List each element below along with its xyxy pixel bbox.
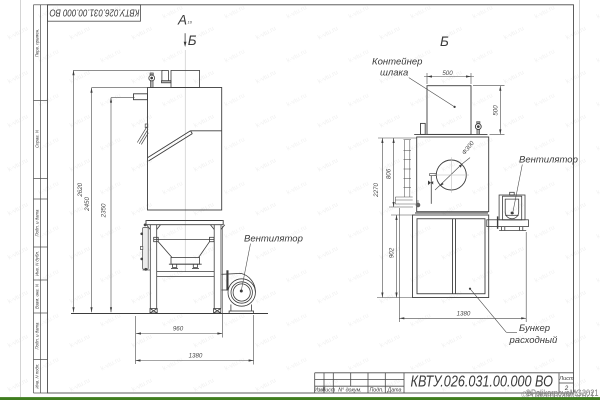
- svg-text:Бункер: Бункер: [519, 323, 550, 334]
- svg-text:Перв. примен.: Перв. примен.: [35, 29, 40, 58]
- svg-text:10: 10: [188, 20, 193, 25]
- svg-text:А: А: [177, 13, 187, 28]
- svg-text:960: 960: [173, 326, 184, 333]
- svg-text:шлака: шлака: [380, 68, 408, 79]
- svg-text:1380: 1380: [457, 310, 471, 317]
- svg-text:Лист: Лист: [558, 376, 574, 382]
- svg-text:2620: 2620: [77, 182, 84, 197]
- svg-text:806: 806: [385, 168, 392, 179]
- svg-text:Взам. инв. N: Взам. инв. N: [35, 283, 40, 309]
- svg-text:Лист: Лист: [321, 387, 336, 393]
- svg-text:Подп. и дата: Подп. и дата: [35, 209, 40, 237]
- svg-text:500: 500: [493, 105, 500, 116]
- svg-text:Инв. N подл.: Инв. N подл.: [35, 363, 40, 388]
- svg-text:Контейнер: Контейнер: [372, 57, 422, 68]
- svg-text:Дата: Дата: [387, 387, 402, 393]
- svg-text:Вентилятор: Вентилятор: [519, 155, 578, 166]
- svg-text:Подп. и дата: Подп. и дата: [35, 322, 40, 350]
- svg-text:2270: 2270: [373, 183, 380, 198]
- svg-text:2450: 2450: [84, 197, 91, 212]
- svg-text:Справ. N: Справ. N: [35, 129, 40, 148]
- svg-text:©PolikarpovaMG2021: ©PolikarpovaMG2021: [526, 388, 599, 398]
- svg-text:N° докум.: N° докум.: [338, 387, 362, 393]
- svg-text:Б: Б: [188, 33, 197, 48]
- svg-text:расходный: расходный: [509, 335, 559, 346]
- svg-text:500: 500: [442, 70, 453, 77]
- svg-text:Б: Б: [440, 34, 449, 49]
- svg-text:КВТУ.026.031.00.000 ВО: КВТУ.026.031.00.000 ВО: [49, 6, 139, 17]
- svg-text:Вентилятор: Вентилятор: [244, 234, 303, 245]
- svg-text:902: 902: [389, 247, 396, 258]
- svg-text:1380: 1380: [189, 353, 203, 360]
- svg-text:Подп.: Подп.: [369, 387, 383, 393]
- svg-text:Инв. N дубл.: Инв. N дубл.: [35, 251, 40, 276]
- svg-text:2350: 2350: [100, 203, 107, 218]
